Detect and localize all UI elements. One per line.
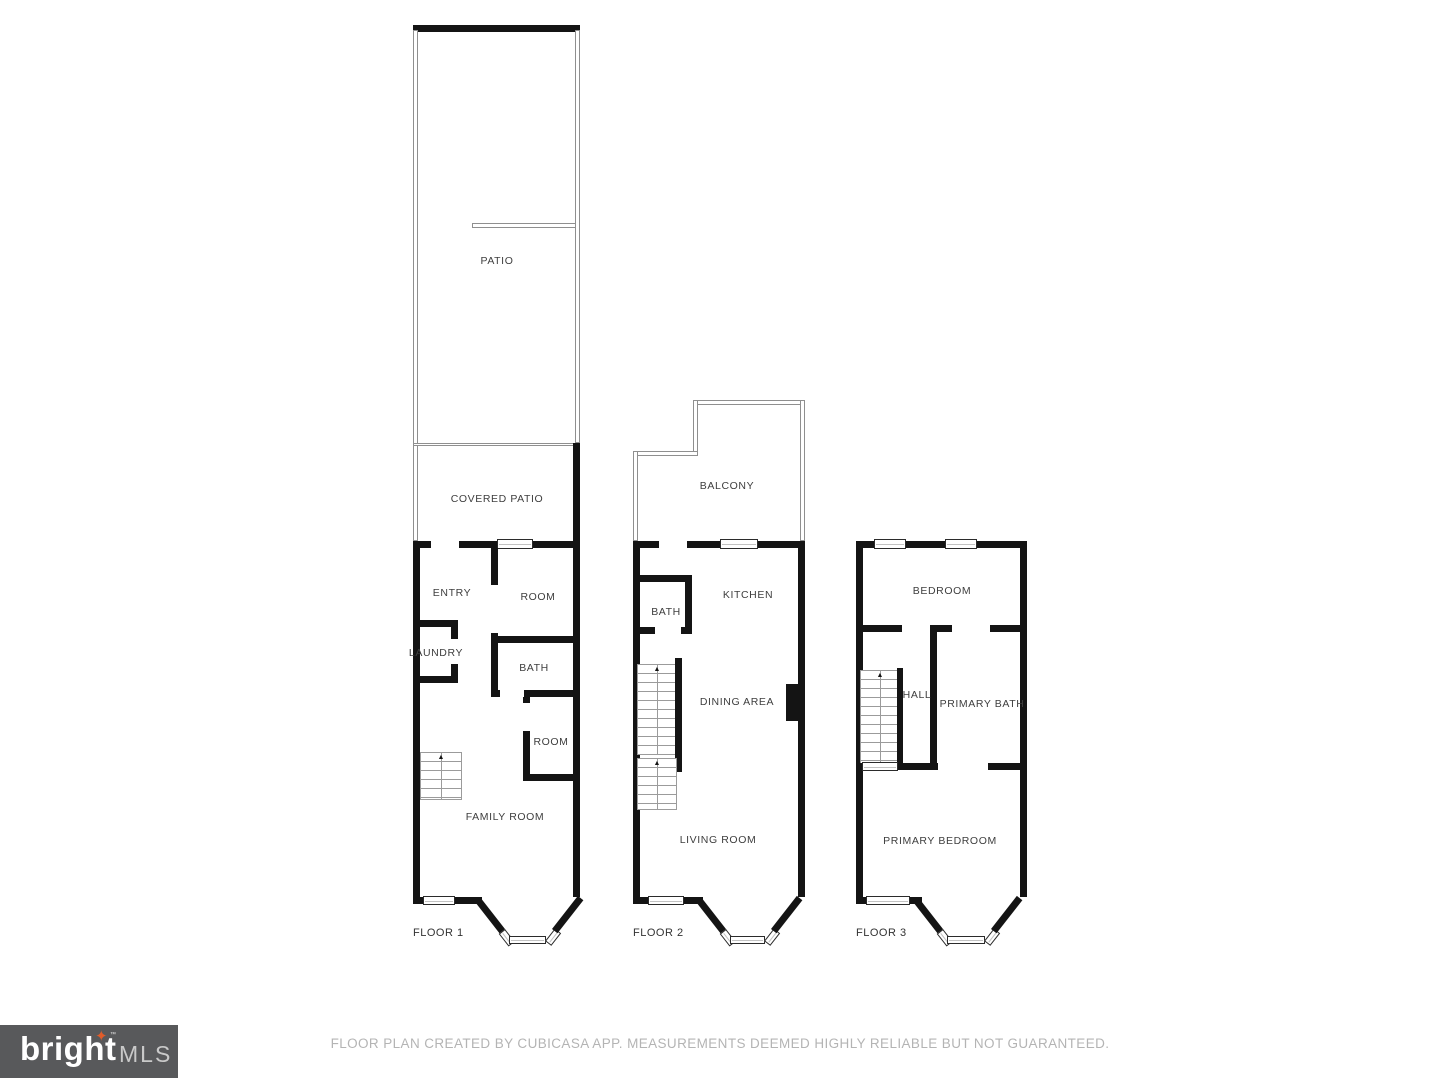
disclaimer-text: FLOOR PLAN CREATED BY CUBICASA APP. MEAS… xyxy=(0,1036,1440,1051)
room-label-patio: PATIO xyxy=(481,255,514,267)
room-label-room-b: ROOM xyxy=(533,736,568,748)
floor2-bay-left-wall xyxy=(695,897,726,934)
floor3-right-wall xyxy=(1020,541,1027,897)
floor1-stairs xyxy=(420,752,462,800)
room-bath-wall xyxy=(491,636,580,643)
floor3-bay-center-window xyxy=(947,936,985,944)
floor3-bay-right-wall xyxy=(991,896,1022,933)
room-label-living-room: LIVING ROOM xyxy=(680,834,757,846)
floor3-bottom-window xyxy=(866,896,910,905)
room-label-bath-f1: BATH xyxy=(519,662,549,674)
trademark-symbol: ™ xyxy=(110,1032,117,1038)
room-label-bedroom: BEDROOM xyxy=(913,585,971,597)
room-label-entry: ENTRY xyxy=(433,587,471,599)
floor3-top-window-right xyxy=(945,539,977,549)
balcony-right-rail xyxy=(800,400,805,541)
room-label-family-room: FAMILY ROOM xyxy=(466,811,545,823)
floor1-left-wall xyxy=(413,541,420,904)
patio-left-fence xyxy=(413,30,418,541)
patio-divider-fence xyxy=(472,223,576,228)
floor3-top-window-left xyxy=(874,539,906,549)
room-label-kitchen: KITCHEN xyxy=(723,589,773,601)
laundry-bottom-wall xyxy=(418,676,458,683)
floor1-right-wall xyxy=(573,443,580,897)
floor3-stairs-wall xyxy=(897,668,903,765)
room-label-covered-patio: COVERED PATIO xyxy=(451,493,544,505)
bedroom-bottom-wall xyxy=(856,625,1027,632)
fireplace xyxy=(786,684,799,721)
balcony-step-rail xyxy=(633,451,698,456)
bedroom-door-opening xyxy=(902,624,930,633)
entry-room-divider-upper xyxy=(491,548,498,585)
balcony-lower-left-rail xyxy=(633,451,638,541)
floor2-right-wall xyxy=(798,541,805,897)
room2-door-opening xyxy=(522,703,531,731)
room-label-laundry: LAUNDRY xyxy=(409,647,463,659)
stairs-doorway xyxy=(862,762,898,771)
patio-top-wall xyxy=(413,25,580,32)
primary-bedroom-door-opening xyxy=(938,762,988,771)
bath2-top-wall xyxy=(640,575,692,582)
bath2-door-opening xyxy=(655,626,681,635)
laundry-top-wall xyxy=(418,620,458,627)
room-label-dining-area: DINING AREA xyxy=(700,696,774,708)
floor2-balcony-door-opening xyxy=(659,540,687,549)
room-label-balcony: BALCONY xyxy=(700,480,754,492)
floor2-label: FLOOR 2 xyxy=(633,927,684,939)
bath-door-opening xyxy=(500,689,524,698)
patio-right-fence xyxy=(575,30,580,443)
floor1-entry-door-opening xyxy=(431,540,459,549)
primary-bath-door-opening xyxy=(952,624,990,633)
balcony-top-rail xyxy=(693,400,805,405)
floor1-bay-center-window xyxy=(509,936,546,944)
floor2-bay-right-wall xyxy=(771,896,802,933)
room2-bottom-wall xyxy=(523,774,580,781)
floor3-bay-left-wall xyxy=(912,897,943,934)
balcony-upper-left-rail xyxy=(693,400,698,456)
floor1-label: FLOOR 1 xyxy=(413,927,464,939)
floor1-top-window xyxy=(497,539,533,549)
covered-patio-divider xyxy=(413,443,580,446)
floor3-label: FLOOR 3 xyxy=(856,927,907,939)
floor2-top-window xyxy=(720,539,758,549)
floor2-stairs-upper xyxy=(637,664,677,755)
floor1-bottom-window xyxy=(423,896,455,905)
star-icon: ✦ xyxy=(95,1027,108,1045)
floor2-bottom-window xyxy=(648,896,684,905)
room-label-primary-bath: PRIMARY BATH xyxy=(940,698,1025,710)
floor2-stairs-lower xyxy=(637,758,677,810)
floor1-bay-left-wall xyxy=(474,897,505,934)
floor2-stairs-wall xyxy=(675,658,682,772)
floor2-bay-center-window xyxy=(730,936,765,944)
room-label-room-a: ROOM xyxy=(520,591,555,603)
bright-mls-logo: bright ✦ ™ MLS xyxy=(0,1025,178,1078)
room-label-hall: HALL xyxy=(903,689,932,701)
floor1-bay-right-wall xyxy=(552,896,583,933)
floor-plan-canvas: PATIO COVERED PATIO ENTRY ROOM LAUNDRY B… xyxy=(0,0,1440,1080)
floor3-stairs xyxy=(860,670,900,765)
logo-suffix-text: MLS xyxy=(119,1041,172,1068)
room-label-primary-bedroom: PRIMARY BEDROOM xyxy=(883,835,997,847)
laundry-right-wall-upper xyxy=(451,627,458,639)
room-label-bath-f2: BATH xyxy=(651,606,681,618)
